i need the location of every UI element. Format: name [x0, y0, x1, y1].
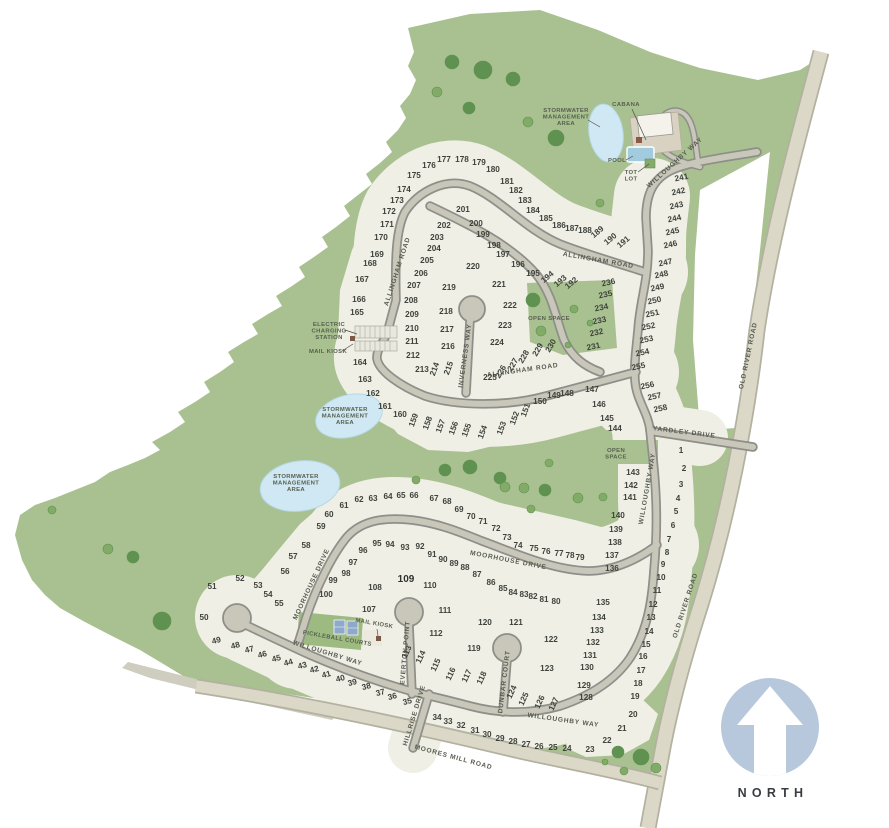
tree-icon — [463, 102, 475, 114]
lot-number: 212 — [406, 351, 420, 360]
lot-number: 163 — [358, 375, 372, 384]
lot-number: 21 — [617, 724, 627, 733]
lot-number: 177 — [437, 155, 451, 164]
lot-number: 134 — [592, 613, 606, 622]
lot-number: 1 — [679, 446, 684, 455]
lot-number: 3 — [679, 480, 684, 489]
lot-number: 203 — [430, 233, 444, 242]
lot-number: 98 — [341, 569, 351, 578]
lot-number: 150 — [533, 397, 547, 406]
lot-number: 185 — [539, 214, 553, 223]
lot-number: 74 — [513, 541, 523, 550]
lot-number: 128 — [579, 693, 593, 702]
lot-number: 140 — [611, 511, 625, 520]
tree-icon — [463, 460, 477, 474]
lot-number: 53 — [253, 581, 263, 590]
lot-number: 17 — [636, 666, 646, 675]
lot-number: 11 — [653, 586, 662, 595]
lot-number: 85 — [498, 584, 508, 593]
lot-number: 8 — [665, 548, 670, 557]
area-label: MANAGEMENT — [543, 115, 589, 121]
tree-icon — [573, 493, 583, 503]
lot-number: 30 — [482, 730, 492, 739]
tree-icon — [474, 61, 492, 79]
lot-number: 95 — [372, 539, 382, 548]
lot-number: 83 — [519, 590, 529, 599]
lot-number: 144 — [608, 424, 622, 433]
lot-number: 196 — [511, 260, 525, 269]
tree-icon — [500, 482, 510, 492]
tree-icon — [48, 506, 56, 514]
lot-number: 145 — [600, 414, 614, 423]
lot-number: 187 — [565, 224, 579, 233]
lot-number: 179 — [472, 158, 486, 167]
lot-number: 12 — [648, 600, 658, 609]
tree-icon — [153, 612, 171, 630]
lot-number: 206 — [414, 269, 428, 278]
lot-number: 50 — [199, 613, 209, 622]
lot-number: 97 — [348, 558, 358, 567]
lot-number: 55 — [274, 599, 284, 608]
lot-number: 133 — [590, 626, 604, 635]
lot-number: 76 — [541, 547, 551, 556]
lot-number: 224 — [490, 338, 504, 347]
lot-number: 34 — [432, 713, 442, 722]
lot-number: 32 — [456, 721, 466, 730]
lot-number: 61 — [339, 501, 349, 510]
tree-icon — [539, 484, 551, 496]
area-label: STATION — [315, 335, 342, 341]
lot-number: 84 — [508, 588, 518, 597]
lot-number: 147 — [585, 385, 599, 394]
lot-number: 160 — [393, 410, 407, 419]
lot-number: 138 — [608, 538, 622, 547]
lot-number: 199 — [476, 230, 490, 239]
lot-number: 221 — [492, 280, 506, 289]
lot-number: 220 — [466, 262, 480, 271]
lot-number: 146 — [592, 400, 606, 409]
lot-number: 108 — [368, 583, 382, 592]
lot-number: 16 — [638, 652, 648, 661]
lot-number: 60 — [324, 510, 334, 519]
site-plan-map: WILLOUGHBY WAYALLINGHAM ROADALLINGHAM RO… — [0, 0, 889, 828]
area-label: STORMWATER — [543, 108, 589, 114]
lot-number: 59 — [316, 522, 326, 531]
lot-number: 141 — [623, 493, 637, 502]
tree-icon — [633, 749, 649, 765]
lot-number: 52 — [235, 574, 245, 583]
lot-number: 22 — [602, 736, 612, 745]
lot-number: 174 — [397, 185, 411, 194]
lot-number: 111 — [439, 606, 452, 615]
tree-icon — [432, 87, 442, 97]
lot-number: 68 — [442, 497, 452, 506]
lot-number: 92 — [415, 542, 425, 551]
lot-number: 198 — [487, 241, 501, 250]
lot-number: 81 — [539, 595, 549, 604]
area-label: POOL — [608, 158, 626, 164]
lot-number: 208 — [404, 296, 418, 305]
tree-icon — [523, 117, 533, 127]
lot-number: 96 — [358, 546, 368, 555]
lot-number: 66 — [409, 491, 419, 500]
lot-number: 54 — [263, 590, 273, 599]
restroom-building — [636, 137, 642, 143]
lot-number: 89 — [449, 559, 459, 568]
lot-number: 19 — [630, 692, 640, 701]
tree-icon — [545, 459, 553, 467]
lot-number: 112 — [429, 629, 443, 638]
area-label: STORMWATER — [322, 407, 368, 413]
lot-number: 14 — [644, 627, 654, 636]
lot-number: 142 — [624, 481, 638, 490]
lot-number: 130 — [580, 663, 594, 672]
lot-number: 110 — [423, 581, 437, 590]
area-label: SPACE — [605, 455, 627, 461]
lot-number: 18 — [633, 679, 643, 688]
area-label: STORMWATER — [273, 474, 319, 480]
lot-number: 218 — [439, 307, 453, 316]
lot-number: 51 — [207, 582, 217, 591]
lot-number: 27 — [521, 740, 531, 749]
lot-number: 169 — [370, 250, 384, 259]
lot-number: 202 — [437, 221, 451, 230]
tree-icon — [570, 305, 578, 313]
tot-lot-shape — [645, 159, 655, 168]
lot-number: 25 — [548, 743, 558, 752]
lot-number: 167 — [355, 275, 369, 284]
lot-number: 79 — [575, 553, 585, 562]
lot-number: 123 — [540, 664, 554, 673]
lot-number: 80 — [551, 597, 561, 606]
lot-number: 162 — [366, 389, 380, 398]
area-label: OPEN — [607, 448, 625, 454]
tree-icon — [439, 464, 451, 476]
lot-number: 109 — [398, 574, 415, 585]
lot-number: 149 — [547, 391, 561, 400]
lot-number: 5 — [674, 507, 679, 516]
tree-icon — [536, 326, 546, 336]
lot-number: 73 — [502, 533, 512, 542]
lot-number: 90 — [438, 555, 448, 564]
area-label: AREA — [336, 420, 354, 426]
lot-number: 216 — [441, 342, 455, 351]
area-label: TOT — [625, 170, 638, 176]
mail-kiosk-south — [376, 636, 381, 641]
tree-icon — [602, 759, 608, 765]
lot-number: 143 — [626, 468, 640, 477]
area-label: MANAGEMENT — [273, 481, 319, 487]
lot-number: 78 — [565, 551, 575, 560]
lot-number: 139 — [609, 525, 623, 534]
lot-number: 6 — [671, 521, 676, 530]
lot-number: 107 — [362, 605, 376, 614]
lot-number: 161 — [378, 402, 392, 411]
lot-number: 31 — [470, 726, 480, 735]
lot-number: 171 — [380, 220, 394, 229]
lot-number: 72 — [491, 524, 501, 533]
lot-number: 207 — [407, 281, 421, 290]
lot-number: 175 — [407, 171, 421, 180]
lot-number: 10 — [656, 573, 666, 582]
lot-number: 33 — [443, 717, 453, 726]
lot-number: 184 — [526, 206, 540, 215]
lot-number: 166 — [352, 295, 366, 304]
lot-number: 87 — [472, 570, 482, 579]
lot-number: 181 — [500, 177, 514, 186]
lot-number: 223 — [498, 321, 512, 330]
lot-number: 71 — [478, 517, 488, 526]
tree-icon — [599, 493, 607, 501]
tree-icon — [445, 55, 459, 69]
lot-number: 88 — [460, 563, 470, 572]
lot-number: 201 — [456, 205, 470, 214]
tree-icon — [620, 767, 628, 775]
tree-icon — [596, 199, 604, 207]
lot-number: 182 — [509, 186, 523, 195]
lot-number: 70 — [466, 512, 476, 521]
lot-number: 20 — [628, 710, 638, 719]
lot-number: 137 — [605, 551, 619, 560]
lot-number: 132 — [586, 638, 600, 647]
lot-number: 4 — [676, 494, 681, 503]
lot-number: 119 — [467, 644, 481, 653]
lot-number: 7 — [667, 535, 672, 544]
lot-number: 91 — [427, 550, 437, 559]
area-label: CHARGING — [312, 329, 347, 335]
lot-number: 168 — [363, 259, 377, 268]
lot-number: 15 — [641, 640, 651, 649]
north-indicator: NORTH — [721, 678, 819, 800]
area-label: ELECTRIC — [313, 322, 346, 328]
lot-number: 217 — [440, 325, 454, 334]
lot-number: 120 — [478, 618, 492, 627]
lot-number: 129 — [577, 681, 591, 690]
lot-number: 164 — [353, 358, 367, 367]
lot-number: 99 — [328, 576, 338, 585]
lot-number: 28 — [508, 737, 518, 746]
lot-number: 131 — [583, 651, 597, 660]
tree-icon — [526, 293, 540, 307]
north-label: NORTH — [738, 786, 809, 800]
lot-number: 94 — [385, 540, 395, 549]
lot-number: 222 — [503, 301, 517, 310]
lot-number: 197 — [496, 250, 510, 259]
lot-number: 58 — [301, 541, 311, 550]
tree-icon — [527, 505, 535, 513]
lot-number: 213 — [415, 365, 429, 374]
lot-number: 75 — [529, 544, 539, 553]
mail-kiosk-north — [350, 336, 355, 341]
site-plan-page: WILLOUGHBY WAYALLINGHAM ROADALLINGHAM RO… — [0, 0, 889, 828]
lot-number: 57 — [288, 552, 298, 561]
lot-number: 180 — [486, 165, 500, 174]
lot-number: 77 — [554, 549, 564, 558]
tree-icon — [103, 544, 113, 554]
tree-icon — [565, 342, 571, 348]
lot-number: 178 — [455, 155, 469, 164]
area-label: MAIL KIOSK — [309, 349, 348, 355]
lot-number: 172 — [382, 207, 396, 216]
lot-number: 122 — [544, 635, 558, 644]
lot-number: 13 — [646, 613, 656, 622]
lot-number: 219 — [442, 283, 456, 292]
lot-number: 195 — [526, 269, 540, 278]
lot-number: 63 — [368, 494, 378, 503]
tree-icon — [412, 476, 420, 484]
lot-number: 69 — [454, 505, 464, 514]
lot-number: 26 — [534, 742, 544, 751]
area-label: AREA — [557, 121, 575, 127]
cabana-building — [637, 112, 673, 137]
tree-icon — [651, 763, 661, 773]
lot-number: 23 — [585, 745, 595, 754]
area-label: AREA — [287, 487, 305, 493]
lot-number: 205 — [420, 256, 434, 265]
lot-number: 29 — [495, 734, 505, 743]
tree-icon — [519, 483, 529, 493]
lot-number: 82 — [528, 592, 538, 601]
tree-icon — [612, 746, 624, 758]
area-label: MANAGEMENT — [322, 414, 368, 420]
lot-number: 135 — [596, 598, 610, 607]
lot-number: 211 — [405, 337, 419, 346]
lot-number: 148 — [560, 389, 574, 398]
lot-number: 62 — [354, 495, 364, 504]
lot-number: 9 — [661, 560, 666, 569]
area-label: LOT — [625, 177, 638, 183]
lot-number: 165 — [350, 308, 364, 317]
tree-icon — [127, 551, 139, 563]
lot-number: 210 — [405, 324, 419, 333]
tree-icon — [506, 72, 520, 86]
lot-number: 200 — [469, 219, 483, 228]
lot-number: 204 — [427, 244, 441, 253]
lot-number: 2 — [682, 464, 687, 473]
lot-number: 100 — [319, 590, 333, 599]
lot-number: 67 — [429, 494, 439, 503]
lot-number: 93 — [400, 543, 410, 552]
lot-number: 136 — [605, 564, 619, 573]
tree-icon — [548, 130, 564, 146]
lot-number: 121 — [509, 618, 523, 627]
area-label: OPEN SPACE — [528, 316, 570, 322]
lot-number: 24 — [562, 744, 572, 753]
lot-number: 65 — [396, 491, 406, 500]
lot-number: 173 — [390, 196, 404, 205]
lot-number: 56 — [280, 567, 290, 576]
lot-number: 183 — [518, 196, 532, 205]
lot-number: 86 — [486, 578, 496, 587]
lot-number: 186 — [552, 221, 566, 230]
lot-number: 64 — [383, 492, 393, 501]
lot-number: 176 — [422, 161, 436, 170]
lot-number: 170 — [374, 233, 388, 242]
lot-number: 209 — [405, 310, 419, 319]
area-label: CABANA — [612, 102, 640, 108]
